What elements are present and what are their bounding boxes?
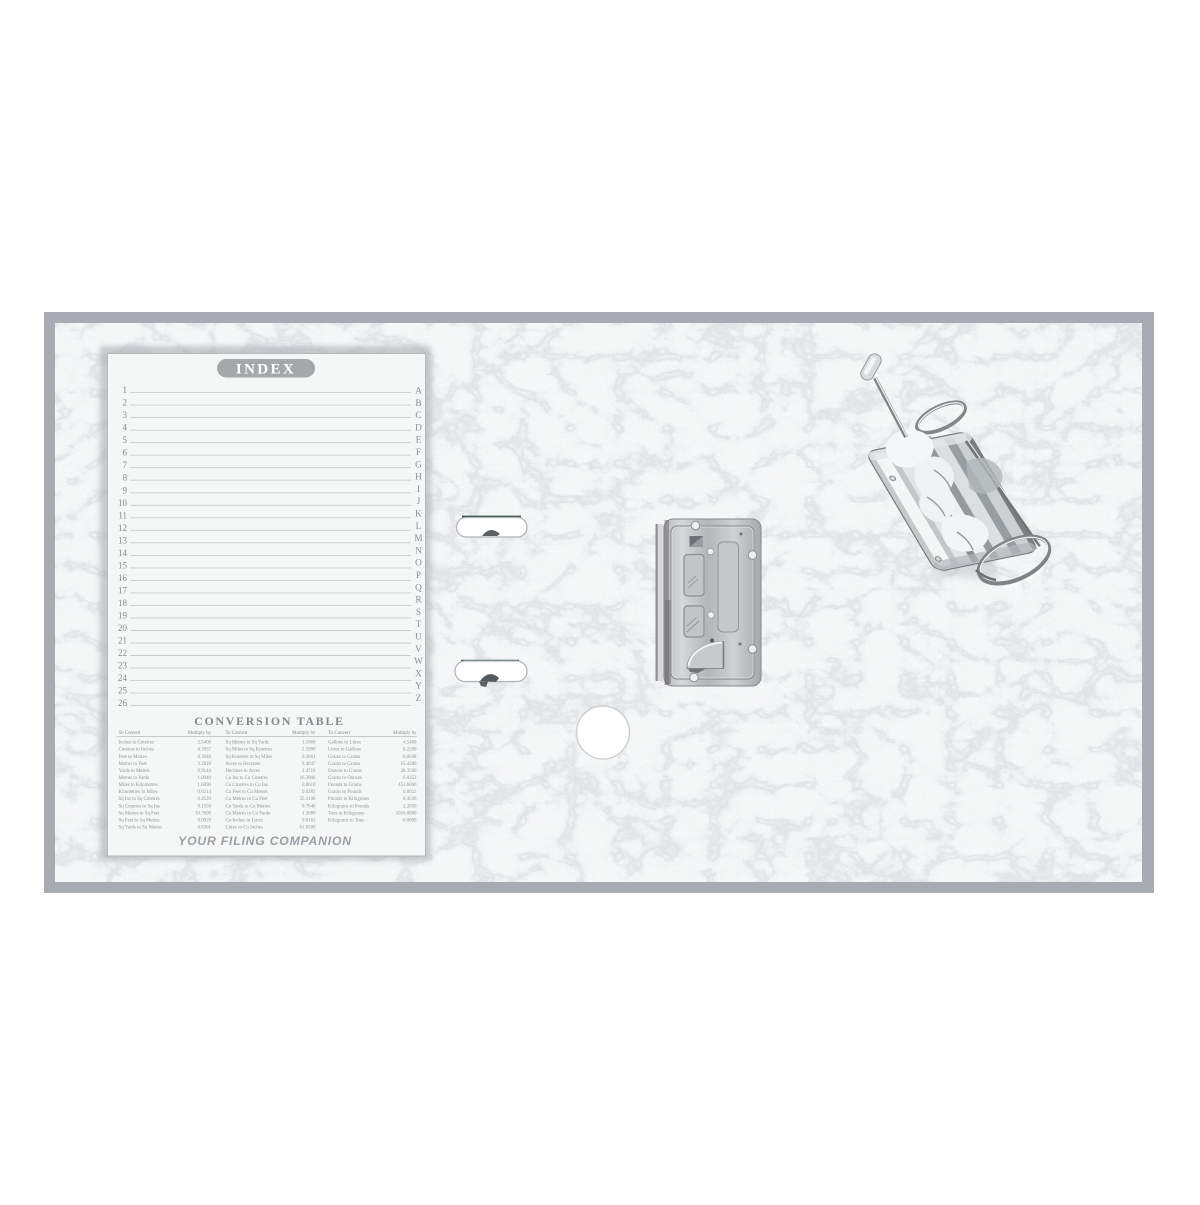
svg-text:N: N	[415, 546, 422, 556]
svg-text:0.7646: 0.7646	[302, 804, 316, 809]
svg-text:0.8361: 0.8361	[198, 826, 212, 831]
svg-text:1016.0000: 1016.0000	[396, 811, 417, 816]
svg-text:1.3080: 1.3080	[302, 811, 316, 816]
svg-text:18: 18	[118, 598, 128, 608]
svg-text:0.3048: 0.3048	[198, 755, 212, 760]
svg-text:16.3900: 16.3900	[300, 776, 316, 781]
svg-text:24: 24	[118, 673, 128, 683]
svg-text:Grams to Pounds: Grams to Pounds	[328, 790, 362, 795]
svg-text:0.0648: 0.0648	[403, 755, 417, 760]
svg-text:E: E	[416, 436, 422, 446]
svg-text:Tons to Kilograms: Tons to Kilograms	[328, 811, 364, 816]
svg-text:0.2200: 0.2200	[403, 748, 417, 753]
svg-text:5: 5	[123, 435, 128, 445]
svg-text:Cu Feet to Cu Metres: Cu Feet to Cu Metres	[226, 790, 268, 795]
svg-text:D: D	[415, 423, 422, 433]
svg-text:0.0610: 0.0610	[302, 783, 316, 788]
svg-text:Grains to Grams: Grains to Grams	[328, 755, 360, 760]
svg-text:H: H	[415, 473, 422, 483]
svg-text:Pounds to Kilograms: Pounds to Kilograms	[328, 797, 369, 802]
svg-text:6.4520: 6.4520	[198, 797, 212, 802]
svg-text:2.4710: 2.4710	[302, 769, 316, 774]
svg-text:Kilometres to Miles: Kilometres to Miles	[119, 790, 158, 795]
svg-text:Grams to Ounces: Grams to Ounces	[328, 776, 362, 781]
svg-text:Cu Yards to Cu Metres: Cu Yards to Cu Metres	[226, 804, 271, 809]
svg-text:Cu Inches to Litres: Cu Inches to Litres	[226, 819, 263, 824]
svg-text:Sq Metres to Sq Feet: Sq Metres to Sq Feet	[119, 811, 161, 816]
svg-text:1: 1	[123, 385, 128, 395]
svg-text:X: X	[415, 669, 422, 679]
svg-text:F: F	[416, 448, 421, 458]
svg-text:1.1960: 1.1960	[302, 741, 316, 746]
svg-text:2.5900: 2.5900	[302, 748, 316, 753]
svg-text:12: 12	[118, 523, 127, 533]
svg-text:Z: Z	[416, 694, 422, 704]
svg-text:Gallons to Litres: Gallons to Litres	[328, 741, 361, 746]
svg-text:19: 19	[118, 611, 128, 621]
svg-text:Y: Y	[415, 682, 422, 692]
svg-text:8: 8	[123, 473, 128, 483]
svg-text:13: 13	[118, 535, 128, 545]
svg-text:Multiply by: Multiply by	[393, 731, 417, 736]
svg-text:Miles to Kilometres: Miles to Kilometres	[119, 783, 158, 788]
svg-text:2.5400: 2.5400	[198, 741, 212, 746]
svg-text:S: S	[416, 608, 421, 618]
svg-text:Metres to Yards: Metres to Yards	[119, 776, 150, 781]
svg-text:14: 14	[118, 548, 128, 558]
svg-text:0.1550: 0.1550	[198, 804, 212, 809]
svg-text:Cmetres to Inches: Cmetres to Inches	[119, 748, 154, 753]
svg-text:7: 7	[123, 460, 128, 470]
svg-text:3.2810: 3.2810	[198, 762, 212, 767]
svg-text:C: C	[415, 411, 421, 421]
svg-text:16: 16	[118, 573, 128, 583]
svg-text:I: I	[417, 485, 420, 495]
svg-text:Sq Feet to Sq Metres: Sq Feet to Sq Metres	[119, 819, 160, 824]
svg-text:INDEX: INDEX	[236, 362, 296, 378]
svg-text:15: 15	[118, 560, 128, 570]
svg-text:0.6214: 0.6214	[198, 790, 212, 795]
svg-text:4: 4	[123, 423, 128, 433]
svg-text:Kilograms to Pounds: Kilograms to Pounds	[328, 804, 369, 809]
svg-text:17: 17	[118, 585, 128, 595]
svg-text:10: 10	[118, 498, 128, 508]
svg-text:1.0940: 1.0940	[198, 776, 212, 781]
svg-text:Sq Cmetres to Sq Ins: Sq Cmetres to Sq Ins	[119, 804, 160, 809]
svg-text:Cu Ins to Cu Cmetres: Cu Ins to Cu Cmetres	[226, 776, 268, 781]
svg-text:Sq Metres to Sq Yards: Sq Metres to Sq Yards	[226, 741, 270, 746]
svg-text:9: 9	[123, 485, 128, 495]
svg-text:0.3861: 0.3861	[302, 755, 316, 760]
svg-text:Litres to Cu Inches: Litres to Cu Inches	[226, 826, 263, 831]
svg-text:1.6090: 1.6090	[198, 783, 212, 788]
svg-text:A: A	[415, 387, 422, 397]
svg-text:Feet to Metres: Feet to Metres	[119, 755, 147, 760]
svg-text:Sq Kmetres to Sq Miles: Sq Kmetres to Sq Miles	[226, 755, 273, 760]
svg-text:R: R	[415, 596, 422, 606]
svg-text:YOUR FILING COMPANION: YOUR FILING COMPANION	[178, 834, 352, 848]
svg-text:V: V	[415, 645, 422, 655]
svg-text:0.0009: 0.0009	[403, 819, 417, 824]
svg-text:20: 20	[118, 623, 128, 633]
svg-text:Multiply by: Multiply by	[292, 731, 316, 736]
svg-text:Litres to Gallons: Litres to Gallons	[328, 748, 361, 753]
svg-text:To Convert: To Convert	[226, 731, 249, 736]
svg-text:61.0300: 61.0300	[300, 826, 316, 831]
svg-text:Q: Q	[415, 583, 422, 593]
svg-text:21: 21	[118, 636, 127, 646]
svg-text:To Convert: To Convert	[119, 731, 142, 736]
svg-text:0.9144: 0.9144	[198, 769, 212, 774]
svg-text:15.4300: 15.4300	[401, 762, 417, 767]
svg-text:Sq Yards to Sq Metres: Sq Yards to Sq Metres	[119, 826, 163, 831]
svg-text:26: 26	[118, 698, 128, 708]
svg-text:K: K	[415, 510, 422, 520]
svg-text:0.0163: 0.0163	[302, 819, 316, 824]
svg-text:Ounces to Grams: Ounces to Grams	[328, 769, 362, 774]
svg-text:Inches to Cmetres: Inches to Cmetres	[119, 741, 154, 746]
svg-text:Kilograms to Tons: Kilograms to Tons	[328, 819, 364, 824]
svg-text:M: M	[414, 534, 422, 544]
svg-text:0.0929: 0.0929	[198, 819, 212, 824]
svg-text:L: L	[416, 522, 422, 532]
svg-text:W: W	[414, 657, 423, 667]
svg-text:2: 2	[123, 398, 128, 408]
svg-text:P: P	[416, 571, 421, 581]
svg-text:10.7600: 10.7600	[195, 811, 211, 816]
svg-text:To Convert: To Convert	[328, 731, 351, 736]
svg-text:G: G	[415, 460, 422, 470]
svg-text:Yards to Metres: Yards to Metres	[119, 769, 150, 774]
svg-text:35.3100: 35.3100	[300, 797, 316, 802]
svg-text:CONVERSION TABLE: CONVERSION TABLE	[194, 714, 345, 728]
svg-text:Pounds to Grams: Pounds to Grams	[328, 783, 362, 788]
svg-text:Sq Miles to Sq Kmetres: Sq Miles to Sq Kmetres	[226, 748, 273, 753]
svg-text:U: U	[415, 633, 422, 643]
svg-text:22: 22	[118, 648, 127, 658]
svg-text:0.3937: 0.3937	[198, 748, 212, 753]
svg-text:T: T	[416, 620, 422, 630]
svg-text:Acres to Hectares: Acres to Hectares	[226, 762, 261, 767]
svg-text:J: J	[417, 497, 421, 507]
svg-text:Cu Metres to Cu Feet: Cu Metres to Cu Feet	[226, 797, 269, 802]
svg-text:0.0352: 0.0352	[403, 776, 417, 781]
svg-text:Cu Cmetres to Cu Ins: Cu Cmetres to Cu Ins	[226, 783, 268, 788]
svg-text:Hectares to Acres: Hectares to Acres	[226, 769, 261, 774]
svg-text:453.6000: 453.6000	[398, 783, 417, 788]
svg-text:6: 6	[123, 448, 128, 458]
svg-text:11: 11	[118, 510, 127, 520]
svg-text:Multiply by: Multiply by	[188, 731, 212, 736]
svg-text:23: 23	[118, 661, 128, 671]
svg-text:Cu Metres to Cu Yards: Cu Metres to Cu Yards	[226, 811, 271, 816]
svg-text:25: 25	[118, 686, 128, 696]
svg-text:O: O	[415, 559, 422, 569]
svg-text:0.0022: 0.0022	[403, 790, 417, 795]
svg-text:0.0283: 0.0283	[302, 790, 316, 795]
svg-text:28.3500: 28.3500	[401, 769, 417, 774]
svg-text:Grams to Grains: Grams to Grains	[328, 762, 360, 767]
svg-text:B: B	[415, 399, 421, 409]
svg-text:0.4536: 0.4536	[403, 797, 417, 802]
svg-text:3: 3	[123, 410, 128, 420]
svg-text:Sq Ins to Sq Cmetres: Sq Ins to Sq Cmetres	[119, 797, 160, 802]
svg-text:Metres to Feet: Metres to Feet	[119, 762, 148, 767]
svg-text:2.2050: 2.2050	[403, 804, 417, 809]
svg-text:0.4047: 0.4047	[302, 762, 316, 767]
svg-text:4.5460: 4.5460	[403, 741, 417, 746]
